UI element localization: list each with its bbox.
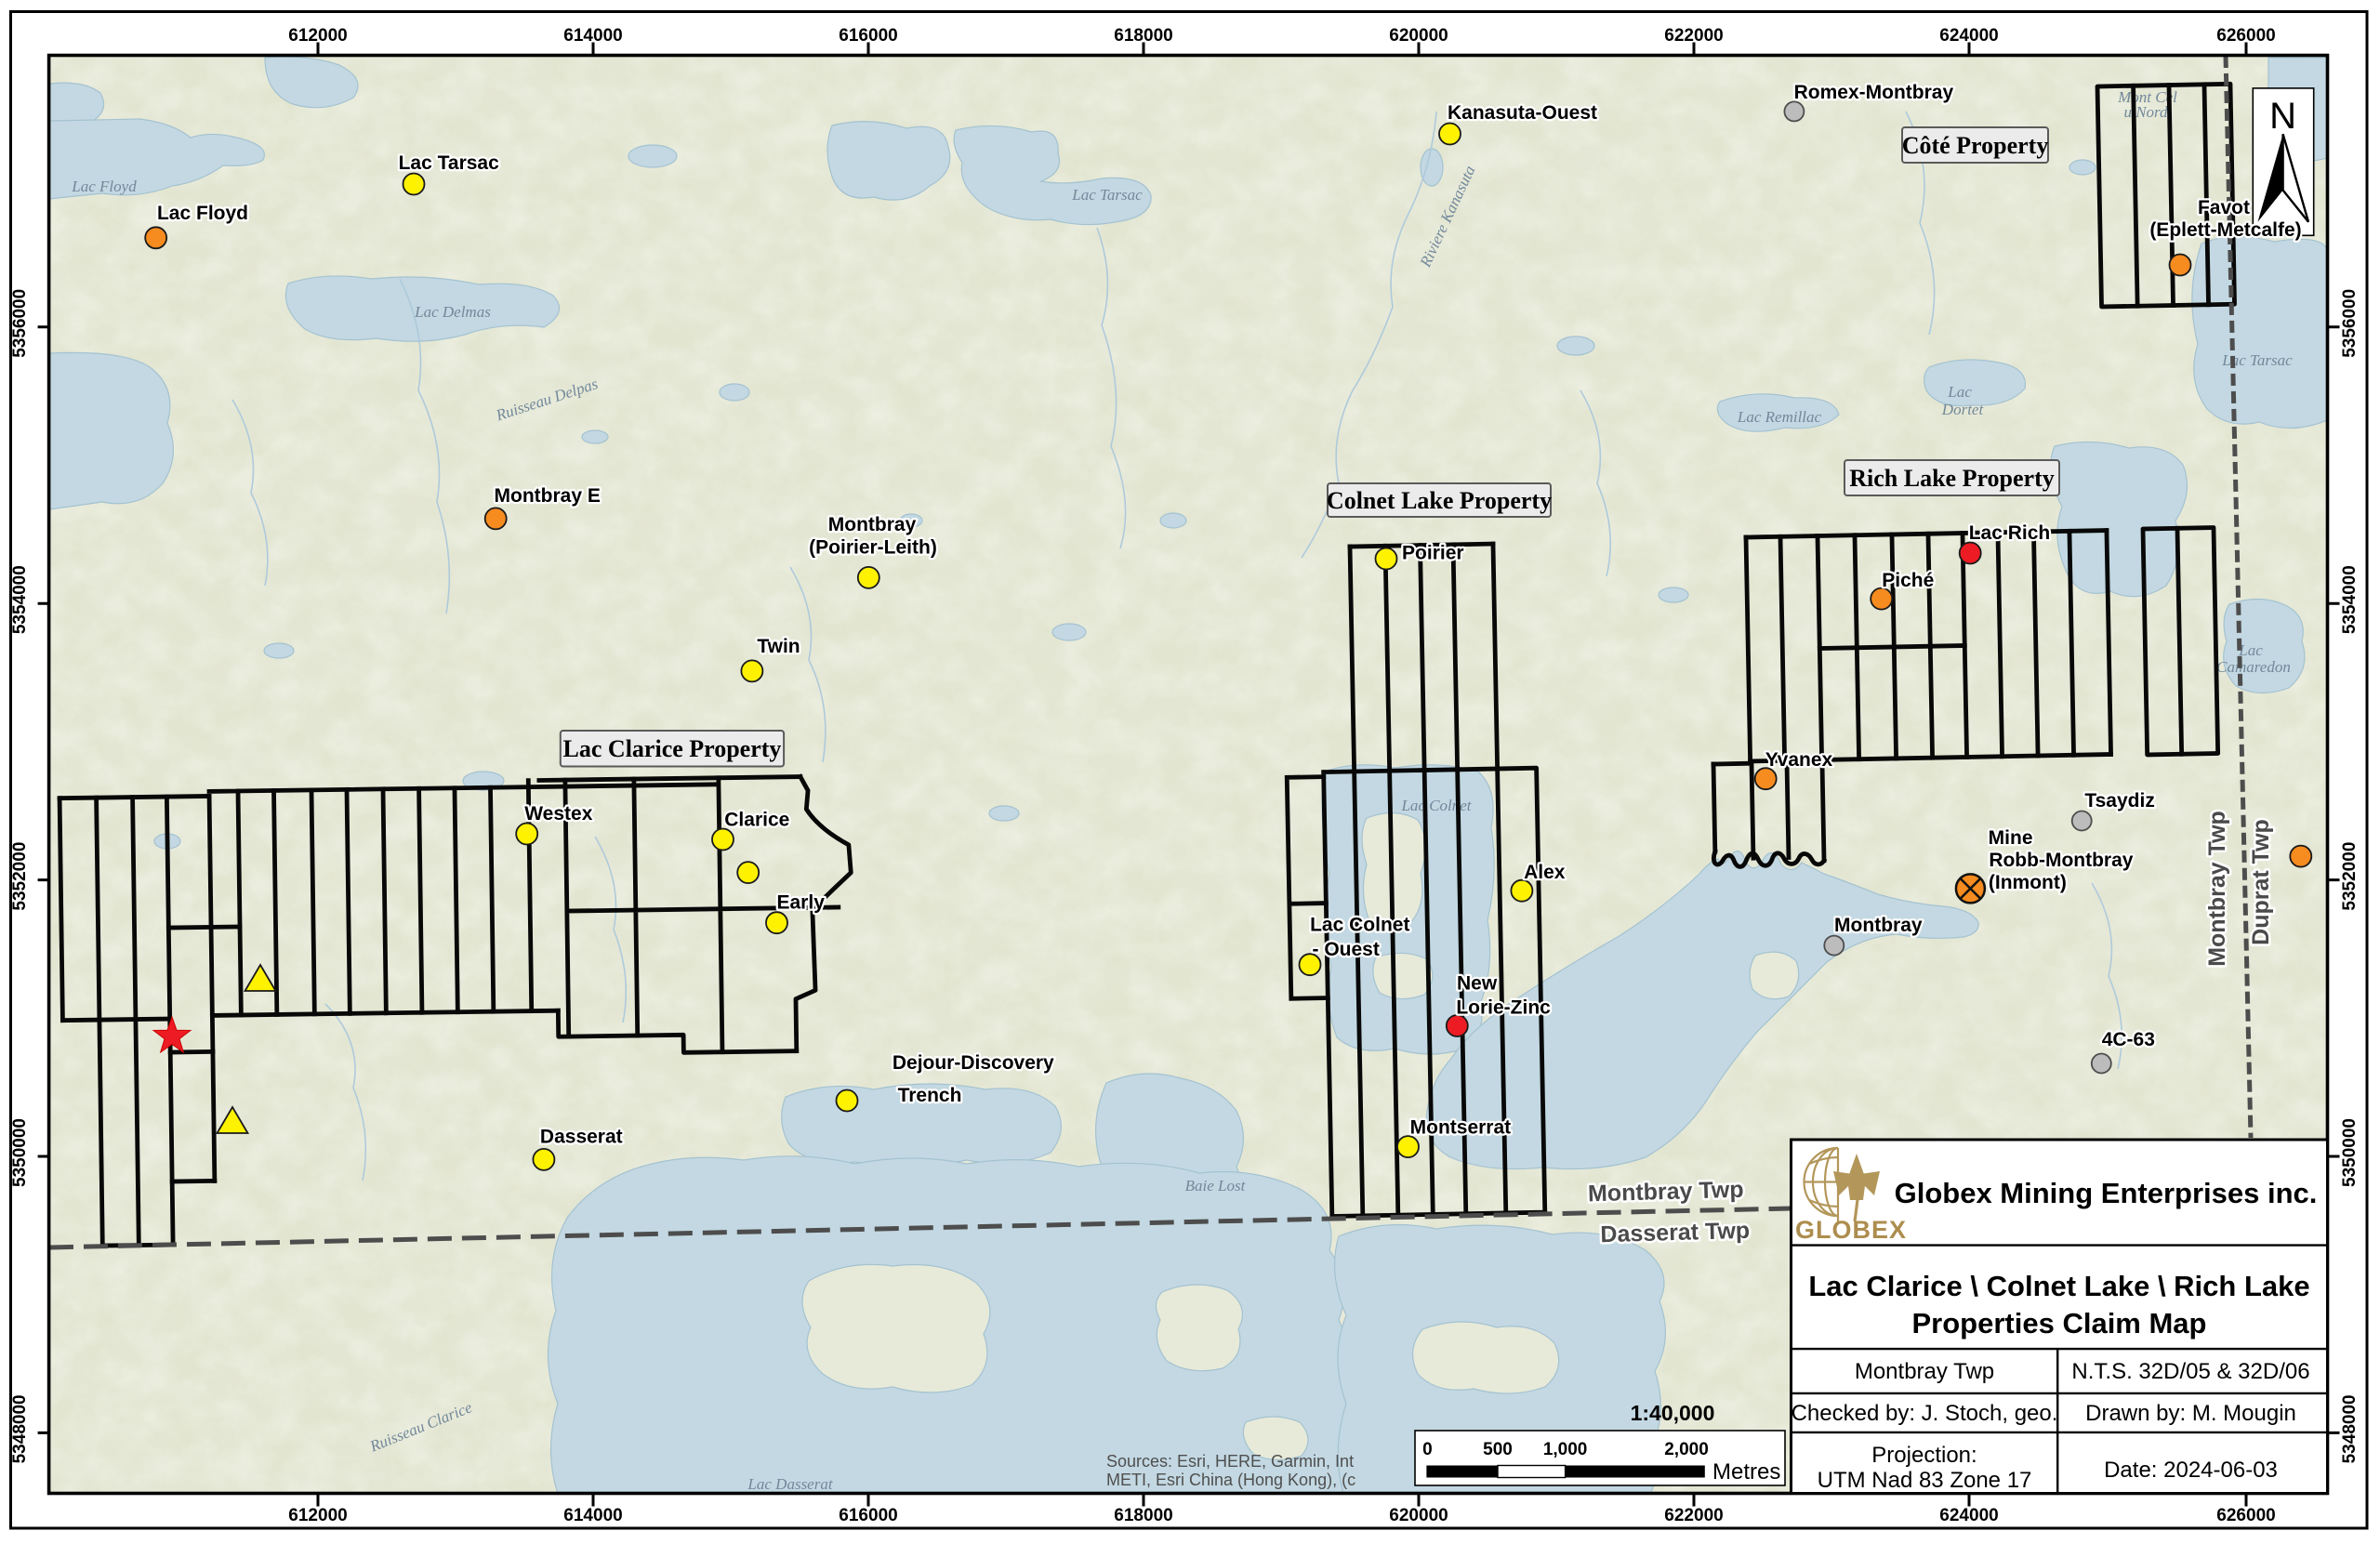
svg-text:Colnet Lake Property: Colnet Lake Property xyxy=(1327,487,1552,514)
svg-text:5352000: 5352000 xyxy=(2340,842,2360,911)
svg-text:0: 0 xyxy=(1422,1440,1433,1459)
svg-text:Poirier: Poirier xyxy=(1402,543,1464,564)
svg-text:(Eplett-Metcalfe): (Eplett-Metcalfe) xyxy=(2149,219,2301,241)
svg-text:Romex-Montbray: Romex-Montbray xyxy=(1794,82,1954,103)
svg-text:622000: 622000 xyxy=(1664,26,1723,46)
svg-text:Côté Property: Côté Property xyxy=(1902,132,2049,159)
svg-text:622000: 622000 xyxy=(1664,1506,1723,1525)
svg-text:Lac Clarice \ Colnet Lake \ Ri: Lac Clarice \ Colnet Lake \ Rich Lake xyxy=(1808,1270,2309,1302)
svg-text:612000: 612000 xyxy=(288,26,347,46)
svg-text:5356000: 5356000 xyxy=(2340,289,2360,358)
svg-text:Lac Colnet: Lac Colnet xyxy=(1400,797,1472,814)
svg-text:Montserrat: Montserrat xyxy=(1410,1117,1512,1139)
svg-text:5350000: 5350000 xyxy=(2340,1118,2360,1187)
svg-text:Robb-Montbray: Robb-Montbray xyxy=(1989,850,2133,871)
svg-text:New: New xyxy=(1457,973,1498,995)
svg-text:N: N xyxy=(2269,96,2296,137)
svg-text:METI, Esri China (Hong Kong),: METI, Esri China (Hong Kong), (c xyxy=(1106,1471,1355,1489)
svg-text:Lac Floyd: Lac Floyd xyxy=(157,203,248,224)
svg-text:2,000: 2,000 xyxy=(1664,1440,1709,1459)
svg-text:5348000: 5348000 xyxy=(10,1394,30,1463)
svg-text:Drawn by: M. Mougin: Drawn by: M. Mougin xyxy=(2085,1401,2296,1426)
svg-text:Lac: Lac xyxy=(1947,383,1972,401)
svg-text:Lac Floyd: Lac Floyd xyxy=(71,178,137,195)
svg-text:614000: 614000 xyxy=(563,1506,622,1525)
svg-text:1,000: 1,000 xyxy=(1543,1440,1588,1459)
svg-text:Lac Remillac: Lac Remillac xyxy=(1737,408,1822,426)
svg-text:Lac Colnet: Lac Colnet xyxy=(1310,915,1409,936)
svg-text:624000: 624000 xyxy=(1939,1506,1998,1525)
svg-text:Favot: Favot xyxy=(2198,197,2250,218)
svg-text:Montbray Twp: Montbray Twp xyxy=(1855,1359,1994,1384)
svg-text:5350000: 5350000 xyxy=(10,1118,30,1187)
svg-text:Twin: Twin xyxy=(757,636,800,657)
svg-text:Westex: Westex xyxy=(524,803,592,825)
svg-text:Montbray E: Montbray E xyxy=(495,485,601,507)
svg-text:Lac Delmas: Lac Delmas xyxy=(414,303,491,321)
svg-text:Dasserat: Dasserat xyxy=(540,1127,623,1148)
svg-text:612000: 612000 xyxy=(288,1506,347,1525)
svg-text:1:40,000: 1:40,000 xyxy=(1631,1401,1715,1425)
svg-text:Dortet: Dortet xyxy=(1941,401,1985,418)
svg-text:Duprat Twp: Duprat Twp xyxy=(2248,819,2274,945)
svg-text:Camaredon: Camaredon xyxy=(2216,658,2291,676)
svg-text:Lac Tarsac: Lac Tarsac xyxy=(399,152,499,174)
svg-text:Mine: Mine xyxy=(1989,827,2033,849)
svg-text:Montbray: Montbray xyxy=(1834,915,1923,936)
svg-text:Globex Mining Enterprises inc.: Globex Mining Enterprises inc. xyxy=(1895,1177,2318,1209)
svg-text:618000: 618000 xyxy=(1114,26,1172,46)
svg-text:Montbray Twp: Montbray Twp xyxy=(1588,1177,1744,1207)
svg-text:5356000: 5356000 xyxy=(10,289,30,358)
svg-text:Early: Early xyxy=(777,892,826,914)
svg-text:Trench: Trench xyxy=(898,1085,962,1106)
svg-text:618000: 618000 xyxy=(1114,1506,1172,1525)
svg-text:Projection:: Projection: xyxy=(1871,1443,1977,1468)
svg-text:614000: 614000 xyxy=(563,26,622,46)
svg-text:Lac Rich: Lac Rich xyxy=(1969,522,2051,544)
svg-text:Montbray Twp: Montbray Twp xyxy=(2204,811,2230,967)
svg-text:616000: 616000 xyxy=(839,1506,897,1525)
svg-text:624000: 624000 xyxy=(1939,26,1998,46)
svg-text:Rich Lake Property: Rich Lake Property xyxy=(1849,465,2055,492)
svg-text:Clarice: Clarice xyxy=(724,810,789,831)
svg-text:UTM Nad 83 Zone 17: UTM Nad 83 Zone 17 xyxy=(1818,1468,2032,1493)
svg-text:620000: 620000 xyxy=(1389,1506,1448,1525)
svg-text:- Ouest: - Ouest xyxy=(1313,939,1380,960)
svg-text:Date: 2024-06-03: Date: 2024-06-03 xyxy=(2104,1458,2278,1483)
svg-text:5354000: 5354000 xyxy=(10,565,30,634)
svg-text:GLOBEX: GLOBEX xyxy=(1795,1216,1907,1244)
svg-text:Montbray: Montbray xyxy=(828,514,917,535)
svg-text:Yvanex: Yvanex xyxy=(1765,749,1833,771)
svg-text:4C-63: 4C-63 xyxy=(2102,1029,2155,1050)
svg-text:Sources: Esri, HERE, Garmin, I: Sources: Esri, HERE, Garmin, Int xyxy=(1106,1452,1354,1471)
svg-text:5354000: 5354000 xyxy=(2340,565,2360,634)
svg-text:Tsaydiz: Tsaydiz xyxy=(2084,790,2154,812)
svg-text:Dasserat Twp: Dasserat Twp xyxy=(1600,1218,1750,1247)
svg-text:(Poirier-Leith): (Poirier-Leith) xyxy=(809,537,937,559)
svg-text:Dejour-Discovery: Dejour-Discovery xyxy=(892,1052,1054,1074)
svg-text:5348000: 5348000 xyxy=(2340,1394,2360,1463)
svg-text:u Nord: u Nord xyxy=(2123,103,2168,121)
svg-text:620000: 620000 xyxy=(1389,26,1448,46)
svg-text:626000: 626000 xyxy=(2216,26,2275,46)
svg-text:500: 500 xyxy=(1483,1440,1513,1459)
svg-text:Properties Claim Map: Properties Claim Map xyxy=(1912,1307,2207,1339)
svg-text:Lorie-Zinc: Lorie-Zinc xyxy=(1456,997,1551,1019)
svg-text:N.T.S. 32D/05 & 32D/06: N.T.S. 32D/05 & 32D/06 xyxy=(2071,1359,2309,1384)
svg-text:Lac Dasserat: Lac Dasserat xyxy=(747,1475,833,1493)
svg-text:Alex: Alex xyxy=(1524,862,1566,883)
svg-text:616000: 616000 xyxy=(839,26,897,46)
svg-text:626000: 626000 xyxy=(2216,1506,2275,1525)
svg-text:Lac Tarsac: Lac Tarsac xyxy=(1071,186,1143,204)
svg-text:Piché: Piché xyxy=(1882,570,1934,591)
svg-text:(Inmont): (Inmont) xyxy=(1989,872,2067,893)
svg-text:5352000: 5352000 xyxy=(10,842,30,911)
svg-text:Kanasuta-Ouest: Kanasuta-Ouest xyxy=(1448,102,1597,124)
svg-text:Checked by: J. Stoch, geo.: Checked by: J. Stoch, geo. xyxy=(1792,1401,2058,1426)
svg-text:Baie Lost: Baie Lost xyxy=(1185,1177,1247,1194)
svg-text:Lac Clarice Property: Lac Clarice Property xyxy=(563,735,782,762)
svg-text:Metres: Metres xyxy=(1712,1459,1780,1485)
